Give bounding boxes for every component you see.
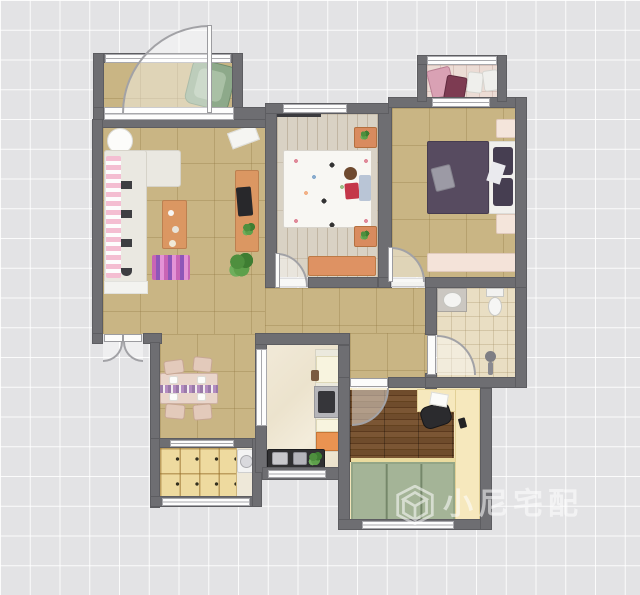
wall-dining-left	[150, 342, 160, 442]
dining-chair-nw[interactable]	[163, 359, 185, 376]
wall-bath-bottom	[425, 377, 517, 388]
plate-4[interactable]	[197, 393, 206, 401]
wall-kitchen-top	[255, 333, 350, 345]
coffee-cup-2[interactable]	[172, 226, 179, 233]
shower-head[interactable]	[485, 351, 496, 362]
wall-bath-right	[515, 277, 527, 388]
wall-study-right	[480, 388, 492, 530]
tv-plant[interactable]	[242, 222, 256, 236]
floor-plant[interactable]	[228, 251, 255, 278]
dining-chair-ne[interactable]	[192, 356, 212, 373]
entry-door-leaf[interactable]	[207, 25, 212, 113]
sink-vegetables[interactable]	[308, 451, 323, 466]
kitchen-bottle[interactable]	[311, 370, 319, 381]
wall-living-left	[92, 119, 103, 344]
wall-bath-top	[425, 277, 517, 288]
kid-pillow-red[interactable]	[344, 182, 359, 199]
wall-kid-bottom	[308, 277, 378, 288]
sofa-mat[interactable]	[104, 281, 148, 294]
wall-bath-left-north	[425, 287, 437, 335]
wall-porch-left	[93, 53, 104, 109]
floorplan-canvas[interactable]: 小尼宅配	[0, 0, 640, 595]
wall-study-left	[338, 377, 350, 530]
study-door-leaf[interactable]	[350, 378, 388, 387]
french-door-right-arc[interactable]	[123, 342, 143, 362]
coffee-cup-1[interactable]	[168, 210, 174, 216]
kitchen-sliding-door[interactable]	[256, 349, 267, 426]
hallway-floor	[265, 288, 428, 333]
master-nightstand-bottom[interactable]	[496, 214, 516, 234]
master-door-leaf[interactable]	[388, 247, 393, 282]
kid-dresser[interactable]	[308, 256, 376, 276]
french-door-left-arc[interactable]	[103, 342, 123, 362]
wall-mbalcony-right	[497, 55, 507, 102]
kid-nightstand-top-plant[interactable]	[360, 130, 370, 140]
toilet-tank[interactable]	[486, 288, 504, 297]
toilet-bowl[interactable]	[488, 297, 502, 316]
kitchen-cabinet-white-top[interactable]	[316, 356, 339, 383]
sofa-armrests[interactable]	[121, 160, 132, 276]
shower-hose[interactable]	[488, 362, 493, 375]
wall-master-right	[515, 97, 527, 288]
french-door-right-leaf[interactable]	[123, 334, 142, 342]
teddy-bear[interactable]	[344, 167, 357, 180]
study-window[interactable]	[362, 521, 454, 529]
wall-study-top-east	[388, 377, 428, 388]
tatami-bed[interactable]	[351, 462, 455, 522]
kitchen-cabinet-white-bottom[interactable]	[316, 419, 339, 432]
wall-porch-right	[232, 53, 243, 109]
kid-nightstand-bottom-plant[interactable]	[360, 230, 370, 240]
laundry-window[interactable]	[162, 498, 250, 506]
living-rug[interactable]	[152, 255, 190, 280]
master-balcony-window[interactable]	[427, 56, 497, 65]
master-nightstand-top[interactable]	[496, 119, 516, 138]
kitchen-window[interactable]	[268, 470, 326, 478]
dining-chair-se[interactable]	[192, 403, 212, 421]
plate-3[interactable]	[169, 393, 178, 401]
bathroom-door-leaf[interactable]	[427, 335, 436, 375]
vanity-basin[interactable]	[443, 292, 462, 308]
coffee-cup-3[interactable]	[169, 240, 176, 247]
storage-cabinets[interactable]	[159, 447, 237, 497]
dining-laundry-window[interactable]	[170, 440, 234, 447]
french-door-left-leaf[interactable]	[104, 334, 123, 342]
sink-basin-right[interactable]	[293, 452, 307, 465]
wall-band-bottom	[93, 119, 277, 128]
kid-room-window[interactable]	[283, 104, 347, 113]
kid-pillow-blue[interactable]	[359, 175, 371, 201]
sink-basin-left[interactable]	[272, 452, 288, 465]
kid-bed-headboard[interactable]	[371, 150, 377, 228]
tv[interactable]	[236, 186, 253, 216]
master-dresser[interactable]	[427, 253, 516, 272]
entry-door-arc[interactable]	[122, 25, 210, 113]
sofa-cushions[interactable]	[106, 156, 121, 278]
dining-chair-sw[interactable]	[164, 403, 185, 420]
master-balcony-inner-window[interactable]	[432, 98, 490, 107]
table-runner[interactable]	[160, 385, 218, 393]
stove-cooktop[interactable]	[318, 391, 335, 413]
study-desk-side[interactable]	[455, 389, 480, 520]
hallway-south-floor	[350, 333, 428, 378]
kid-door-leaf[interactable]	[275, 253, 280, 288]
plate-2[interactable]	[197, 376, 206, 384]
wall-living-sw-corner	[92, 333, 103, 344]
plate-1[interactable]	[169, 376, 178, 384]
